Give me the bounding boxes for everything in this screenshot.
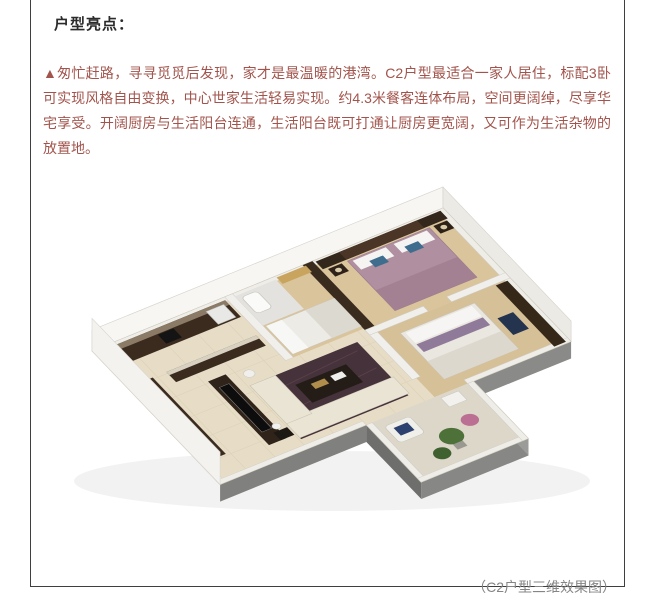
content-frame: 户型亮点： ▲匆忙赶路，寻寻觅觅后发现，家才是最温暖的港湾。C2户型最适合一家人… xyxy=(30,0,625,587)
section-heading: 户型亮点： xyxy=(31,0,624,34)
article-page: 户型亮点： ▲匆忙赶路，寻寻觅觅后发现，家才是最温暖的港湾。C2户型最适合一家人… xyxy=(0,0,652,593)
figure-caption: （C2户型三维效果图） xyxy=(31,577,624,593)
apartment-3d-render xyxy=(32,176,623,561)
highlight-paragraph: ▲匆忙赶路，寻寻觅觅后发现，家才是最温暖的港湾。C2户型最适合一家人居住，标配3… xyxy=(43,61,611,161)
